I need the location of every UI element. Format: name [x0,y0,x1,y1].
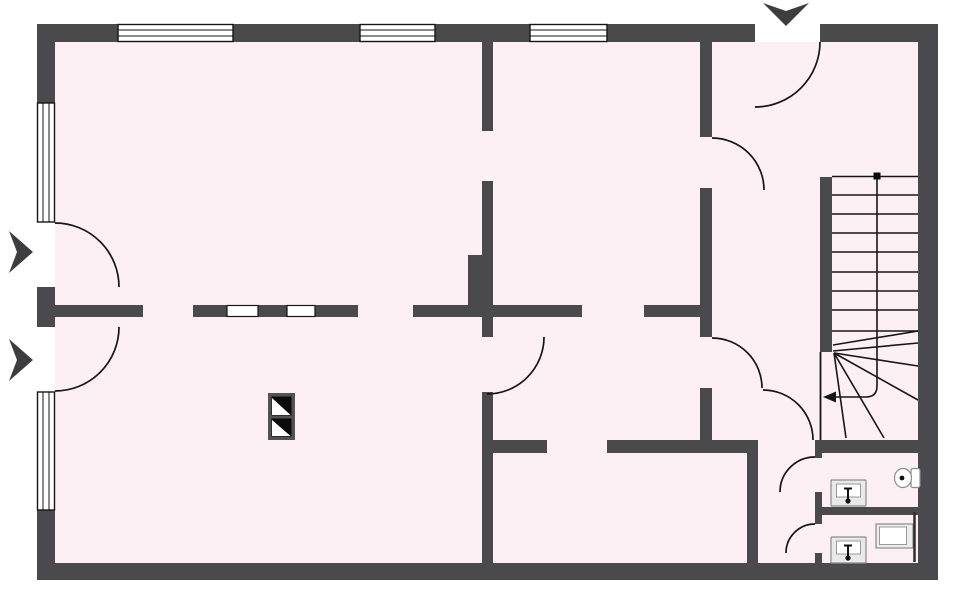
stair-side-wall [820,177,832,352]
stair-start-dot [874,173,881,180]
interior-wall-c-upper [700,42,712,137]
interior-wall-d-seg-3 [815,440,918,453]
wc1-toilet-tank [911,469,920,488]
window-top-1 [118,25,233,42]
interior-wall-b-seg-3 [413,305,582,317]
window-left-1 [38,103,55,222]
outer-right-wall [918,42,938,563]
wc-wall-seg-2 [815,492,822,524]
wc-divider-wall [822,507,918,515]
interior-wall-a-lower [482,392,493,563]
outer-left-wall-seg-1 [37,42,55,103]
wc2-shower-tray [880,527,907,545]
wc2-sink-tap-dot [845,555,850,560]
outer-top-wall-seg-5 [820,24,938,42]
interior-wall-d-seg-1 [493,440,547,453]
wc1-toilet-dot [900,476,905,481]
interior-wall-d-seg-2 [607,440,758,453]
outer-top-wall-seg-4 [607,24,755,42]
left-entry-arrow-lower [9,339,33,381]
outer-top-wall-seg-1 [37,24,118,42]
glazed-panel-1 [227,306,258,317]
interior-wall-e [747,440,758,563]
interior-wall-b-seg-1 [55,305,143,317]
floor-plan-stage [0,0,960,591]
outer-top-wall-seg-3 [435,24,530,42]
interior-wall-b-seg-2 [193,305,358,317]
outer-top-wall-seg-2 [233,24,360,42]
wc-wall-seg-3 [815,553,822,563]
floor-plan-canvas [0,0,960,591]
entrance-arrow [763,3,809,26]
interior-wall-a-upper [482,42,493,131]
outer-left-wall-seg-2 [37,287,55,327]
interior-wall-c-mid [700,188,712,337]
window-top-3 [530,25,607,42]
wc1-sink-tap-dot [845,498,850,503]
window-left-2 [38,392,55,510]
chimney-breast [468,255,493,307]
outer-left-wall-seg-3 [37,510,55,563]
wc-wall-seg-1 [815,448,822,458]
window-top-2 [360,25,435,42]
outer-bottom-wall [37,563,938,580]
glazed-panel-2 [287,306,315,317]
left-entry-arrow-upper [9,231,33,273]
